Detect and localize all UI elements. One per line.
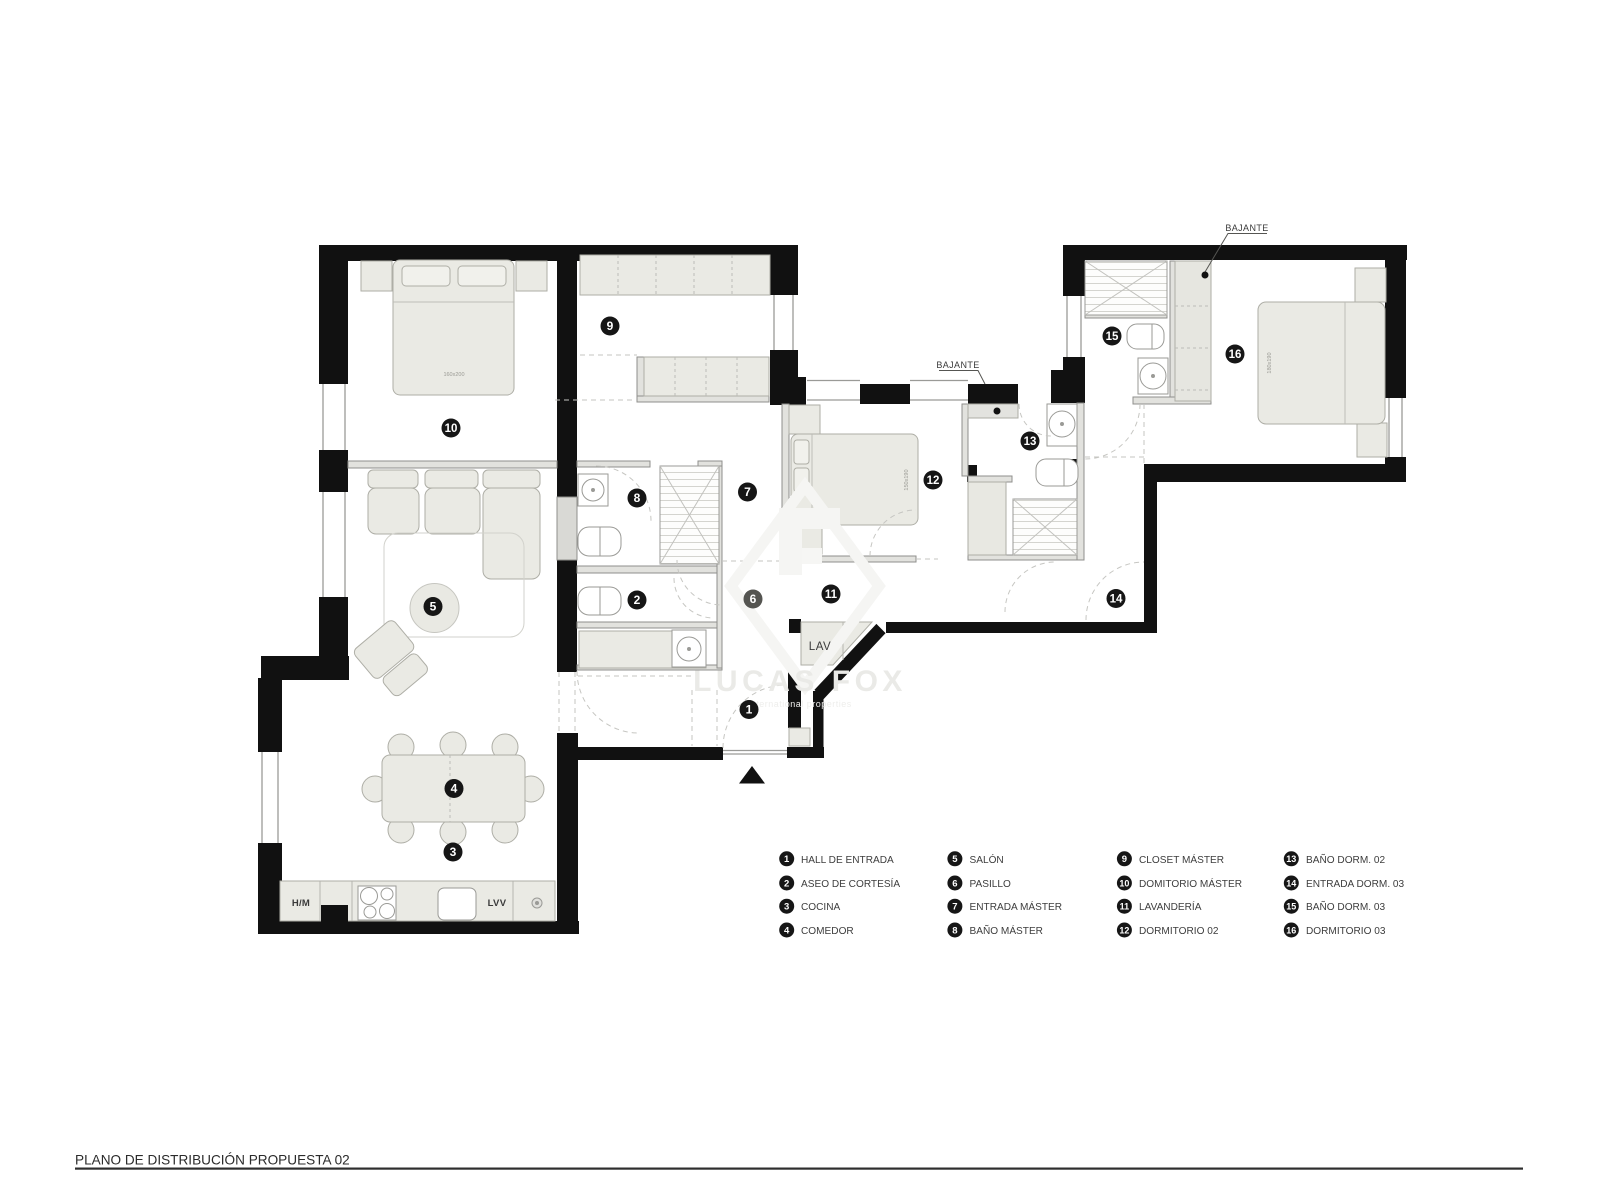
svg-text:15: 15 xyxy=(1286,902,1296,912)
svg-text:CLOSET MÁSTER: CLOSET MÁSTER xyxy=(1139,853,1224,866)
svg-text:150x190: 150x190 xyxy=(904,469,910,490)
svg-text:2: 2 xyxy=(634,593,641,607)
svg-text:BAÑO MÁSTER: BAÑO MÁSTER xyxy=(970,924,1043,937)
svg-text:DORMITORIO 03: DORMITORIO 03 xyxy=(1306,926,1386,937)
svg-text:16: 16 xyxy=(1286,925,1296,935)
svg-text:6: 6 xyxy=(952,878,957,889)
svg-text:2: 2 xyxy=(784,878,789,889)
svg-text:160x200: 160x200 xyxy=(443,372,464,378)
svg-text:3: 3 xyxy=(450,845,457,859)
svg-text:16: 16 xyxy=(1229,349,1242,361)
svg-text:1: 1 xyxy=(784,854,790,865)
svg-text:11: 11 xyxy=(1120,902,1130,912)
svg-text:10: 10 xyxy=(445,423,458,435)
svg-text:7: 7 xyxy=(744,485,751,499)
svg-text:ENTRADA MÁSTER: ENTRADA MÁSTER xyxy=(970,900,1063,913)
svg-text:4: 4 xyxy=(451,782,458,796)
svg-text:ENTRADA DORM. 03: ENTRADA DORM. 03 xyxy=(1306,879,1405,890)
svg-text:3: 3 xyxy=(784,902,789,913)
svg-text:BAÑO DORM. 02: BAÑO DORM. 02 xyxy=(1306,853,1385,866)
svg-text:DORMITORIO 02: DORMITORIO 02 xyxy=(1139,926,1219,937)
svg-text:DOMITORIO MÁSTER: DOMITORIO MÁSTER xyxy=(1139,877,1242,890)
svg-text:LUCAS FOX: LUCAS FOX xyxy=(693,665,907,698)
svg-text:12: 12 xyxy=(1119,925,1129,935)
svg-text:8: 8 xyxy=(952,925,957,936)
svg-text:SALÓN: SALÓN xyxy=(970,853,1004,866)
svg-text:COCINA: COCINA xyxy=(801,902,841,913)
svg-text:BAÑO DORM. 03: BAÑO DORM. 03 xyxy=(1306,900,1385,913)
svg-text:PLANO DE DISTRIBUCIÓN PROPUEST: PLANO DE DISTRIBUCIÓN PROPUESTA 02 xyxy=(75,1153,350,1168)
svg-text:LVV: LVV xyxy=(488,898,507,909)
svg-text:14: 14 xyxy=(1110,594,1123,606)
svg-text:H/M: H/M xyxy=(292,898,310,909)
svg-text:6: 6 xyxy=(750,592,757,606)
svg-text:180x190: 180x190 xyxy=(1267,352,1273,373)
svg-text:1: 1 xyxy=(746,703,753,717)
svg-text:7: 7 xyxy=(952,902,957,913)
svg-text:LAVANDERÍA: LAVANDERÍA xyxy=(1139,900,1202,913)
svg-text:13: 13 xyxy=(1024,436,1037,448)
svg-text:15: 15 xyxy=(1106,331,1119,343)
svg-text:9: 9 xyxy=(1122,854,1127,865)
svg-text:5: 5 xyxy=(952,854,958,865)
svg-text:international properties: international properties xyxy=(748,699,852,709)
svg-text:HALL DE ENTRADA: HALL DE ENTRADA xyxy=(801,855,894,866)
svg-text:LAV: LAV xyxy=(809,641,831,653)
svg-text:14: 14 xyxy=(1286,878,1296,888)
svg-text:9: 9 xyxy=(607,319,614,333)
svg-text:13: 13 xyxy=(1286,854,1296,864)
svg-text:4: 4 xyxy=(784,925,790,936)
svg-text:BAJANTE: BAJANTE xyxy=(936,360,979,370)
svg-text:BAJANTE: BAJANTE xyxy=(1225,223,1268,233)
svg-text:ASEO DE CORTESÍA: ASEO DE CORTESÍA xyxy=(801,877,900,890)
svg-text:PASILLO: PASILLO xyxy=(970,879,1011,890)
svg-text:COMEDOR: COMEDOR xyxy=(801,926,854,937)
svg-text:8: 8 xyxy=(634,491,641,505)
svg-text:5: 5 xyxy=(430,600,437,614)
svg-text:10: 10 xyxy=(1119,878,1129,888)
svg-text:12: 12 xyxy=(927,475,940,487)
svg-text:11: 11 xyxy=(825,589,838,601)
